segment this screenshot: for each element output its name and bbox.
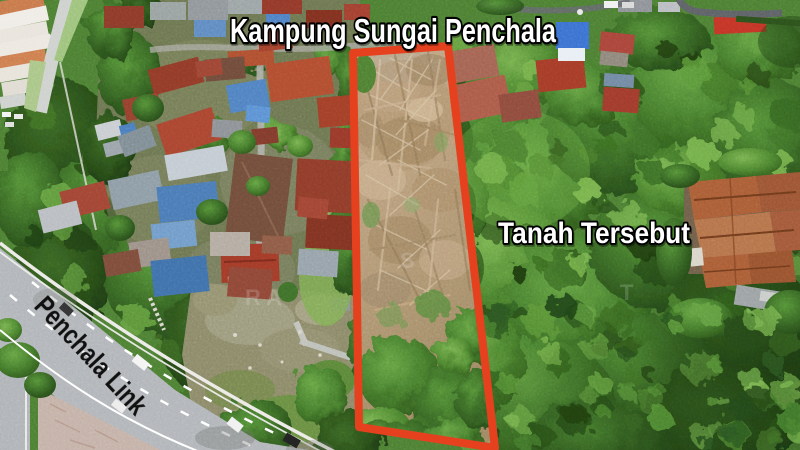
svg-text:Tanah Tersebut: Tanah Tersebut [498, 217, 690, 250]
svg-text:Kampung Sungai Penchala: Kampung Sungai Penchala [230, 12, 556, 49]
